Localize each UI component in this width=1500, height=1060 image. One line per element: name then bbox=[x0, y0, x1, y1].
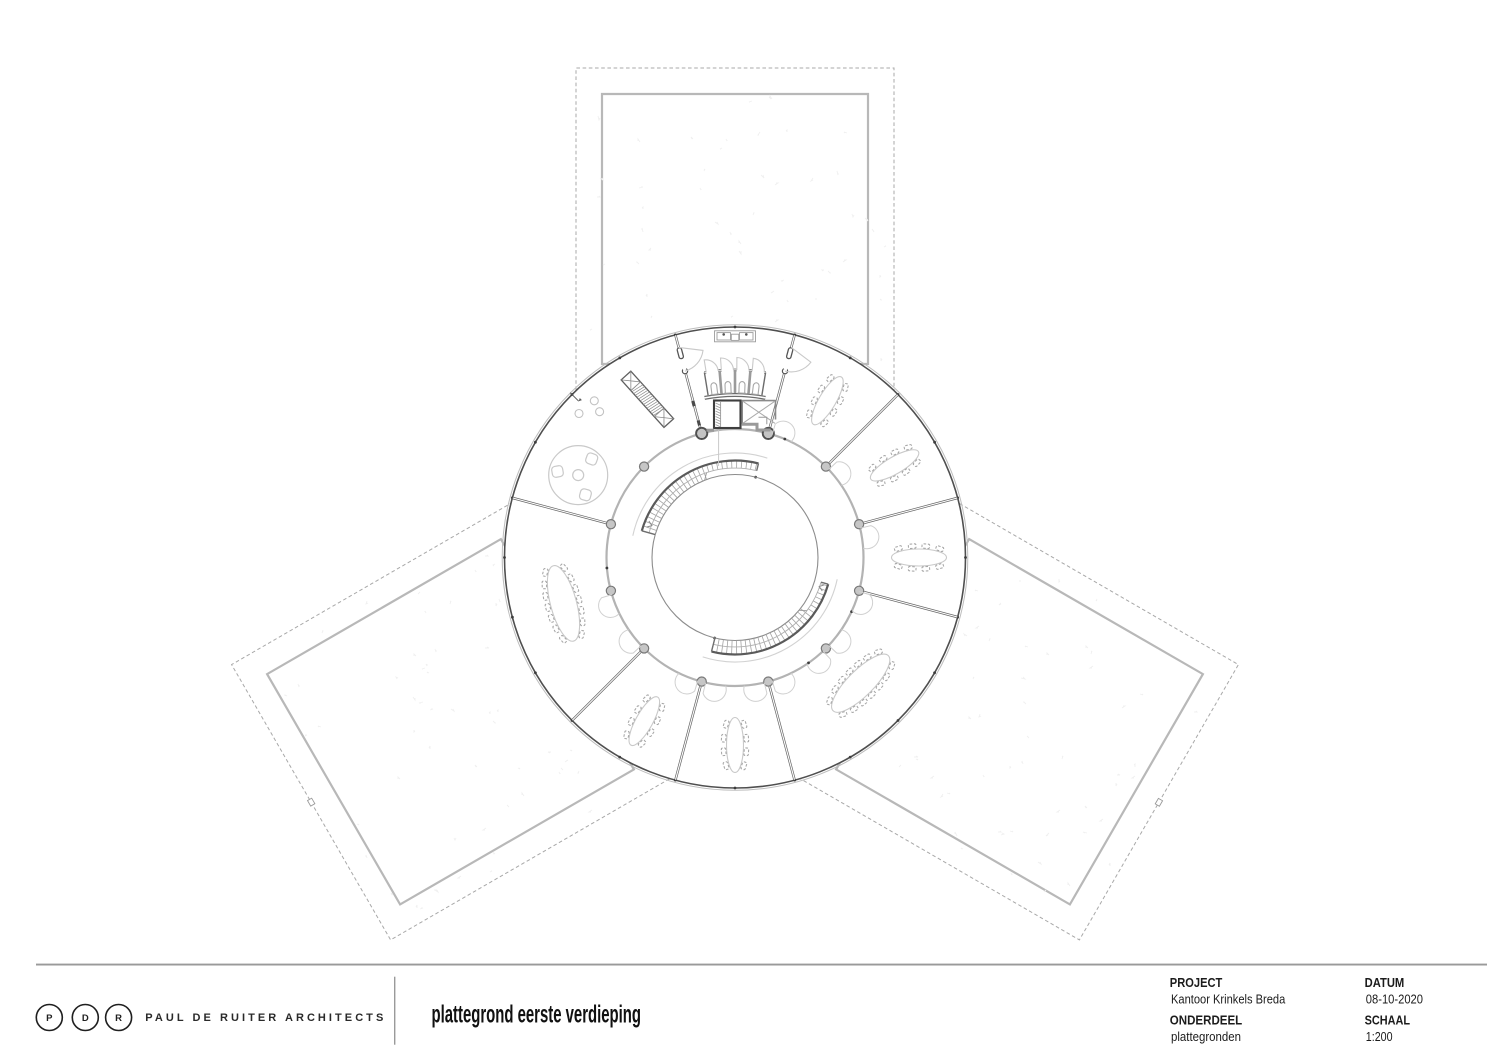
svg-text:P: P bbox=[46, 1013, 53, 1024]
svg-text:Kantoor Krinkels Breda: Kantoor Krinkels Breda bbox=[1171, 992, 1286, 1007]
svg-text:D: D bbox=[82, 1013, 89, 1024]
svg-text:plattegronden: plattegronden bbox=[1171, 1029, 1241, 1044]
svg-text:ONDERDEEL: ONDERDEEL bbox=[1170, 1013, 1242, 1028]
svg-text:08-10-2020: 08-10-2020 bbox=[1366, 992, 1423, 1007]
svg-text:plattegrond eerste verdieping: plattegrond eerste verdieping bbox=[432, 1001, 642, 1029]
svg-text:PAUL DE RUITER ARCHITECTS: PAUL DE RUITER ARCHITECTS bbox=[145, 1012, 383, 1024]
svg-text:1:200: 1:200 bbox=[1366, 1029, 1393, 1044]
svg-text:PROJECT: PROJECT bbox=[1170, 975, 1223, 990]
svg-text:DATUM: DATUM bbox=[1365, 975, 1405, 990]
svg-text:SCHAAL: SCHAAL bbox=[1365, 1013, 1411, 1028]
svg-text:R: R bbox=[115, 1013, 122, 1024]
